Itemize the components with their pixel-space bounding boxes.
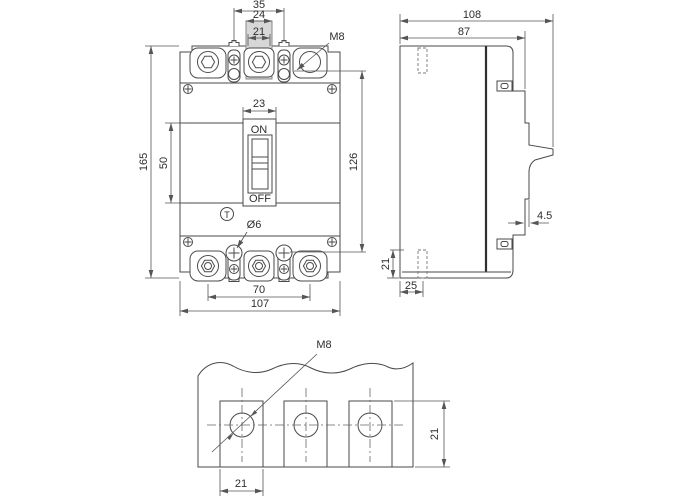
left-face-panel: [180, 123, 243, 203]
dim-tab-outer: 24: [253, 9, 265, 21]
side-body-outline: [400, 46, 553, 278]
switch-off-label: OFF: [249, 193, 271, 205]
dim-handle-step: 4.5: [537, 210, 552, 222]
dim-mount-span: 126: [348, 153, 360, 171]
dim-pad-height: 21: [429, 428, 441, 440]
terminal-clip-bottom: [497, 239, 512, 249]
trip-test-button: T: [221, 208, 234, 221]
technical-drawing-circuit-breaker: ON OFF T: [0, 0, 700, 500]
dim-overall-width: 107: [251, 298, 269, 310]
m8-terminal-hole: [300, 52, 321, 73]
bottom-terminal-lugs: [190, 251, 327, 281]
dim-base-height: 21: [380, 258, 392, 270]
trip-button-letter: T: [224, 210, 230, 220]
toggle-switch: [248, 135, 272, 193]
thread-callout-m8-detail: M8: [316, 339, 331, 351]
right-face-panel: [276, 123, 340, 203]
front-view: ON OFF T: [138, 0, 366, 316]
switch-on-label: ON: [251, 124, 268, 136]
dim-pole-span: 70: [253, 284, 265, 296]
dim-switch-width: 23: [253, 98, 265, 110]
dim-depth-total: 108: [463, 9, 481, 21]
dim-depth-body: 87: [458, 26, 470, 38]
drawing-svg: ON OFF T: [0, 0, 700, 500]
dim-slot-offset: 25: [405, 280, 417, 292]
top-terminal-lugs: [190, 48, 327, 78]
terminal-clip-top: [497, 81, 512, 91]
hole-callout-dia6: Ø6: [247, 219, 262, 231]
dim-pad-width: 21: [235, 478, 247, 490]
side-view: 108 87 4.5 21 25: [380, 9, 553, 297]
thread-callout-m8: M8: [329, 31, 344, 43]
dim-panel-height: 50: [158, 157, 170, 169]
dim-tab-inner: 21: [253, 26, 265, 38]
terminal-pad-detail-view: M8 21 21: [198, 339, 450, 496]
dim-overall-height: 165: [138, 153, 150, 171]
